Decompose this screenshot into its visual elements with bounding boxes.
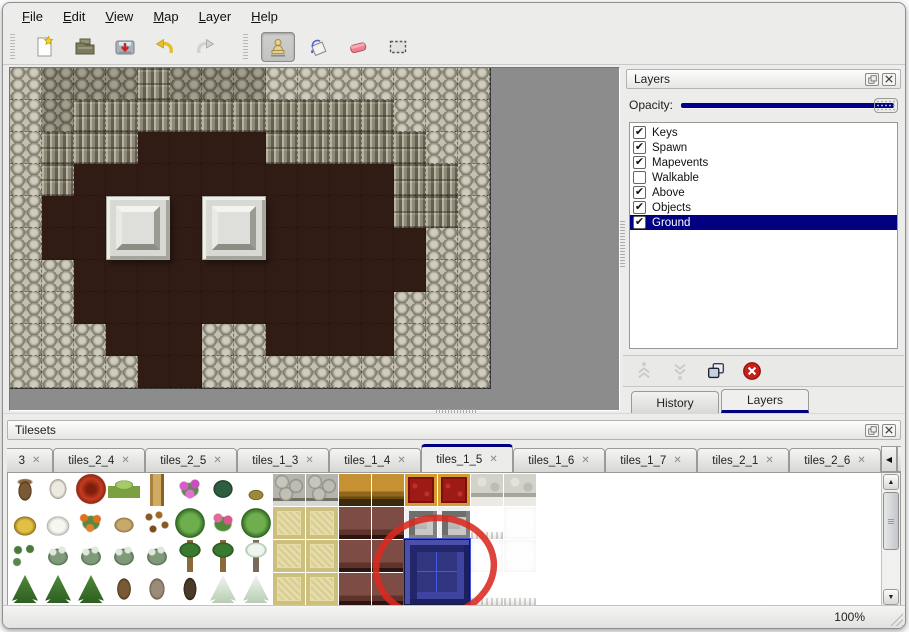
eraser-tool-icon (346, 35, 370, 59)
map-tile-light-rock-scales[interactable] (266, 68, 298, 100)
float-panel-button[interactable] (865, 424, 879, 437)
map-tile-cliff-face[interactable] (362, 100, 394, 132)
tileset-tile-pine[interactable] (9, 573, 41, 605)
tileset-tile-maroon[interactable] (372, 573, 404, 605)
map-tile-dark-rock-scales[interactable] (170, 68, 202, 100)
map-tile-cliff-face[interactable] (170, 100, 202, 132)
close-panel-button[interactable] (882, 73, 896, 86)
scroll-tabs-left-button[interactable]: ◀ (881, 446, 897, 472)
map-tile-brown-cobble-floor[interactable] (362, 196, 394, 228)
map-tile-brown-cobble-floor[interactable] (330, 292, 362, 324)
scroll-up-button[interactable]: ▲ (883, 474, 899, 490)
save-file-icon (113, 35, 137, 59)
map-tile-cliff-face[interactable] (202, 100, 234, 132)
map-tile-light-rock-scales[interactable] (426, 228, 458, 260)
undo-button[interactable] (148, 32, 182, 62)
tileset-tile-maroon[interactable] (372, 540, 404, 572)
tileset-tile-palm[interactable] (174, 540, 206, 572)
tileset-tile-wood[interactable] (372, 474, 404, 506)
blue-beveled-tile-selected[interactable] (404, 539, 470, 605)
tileset-tab-tiles_1_3[interactable]: tiles_1_3✕ (237, 448, 329, 472)
map-tile-brown-cobble-floor[interactable] (202, 260, 234, 292)
map-tile-light-rock-scales[interactable] (106, 356, 138, 388)
map-tile-cliff-face[interactable] (330, 132, 362, 164)
map-tile-brown-cobble-floor[interactable] (202, 292, 234, 324)
tileset-tile-dark-trunk[interactable] (174, 573, 206, 605)
fill-tool-button[interactable] (301, 32, 335, 62)
map-tile-brown-cobble-floor[interactable] (330, 260, 362, 292)
map-tile-brown-cobble-floor[interactable] (298, 324, 330, 356)
map-tile-brown-cobble-floor[interactable] (298, 260, 330, 292)
redo-button[interactable] (188, 32, 222, 62)
tileset-tile-lily-pad[interactable] (174, 507, 206, 539)
tileset-tile-lily-pad[interactable] (240, 507, 272, 539)
tileset-tile-trunk[interactable] (9, 474, 41, 506)
map-tile-dark-rock-scales[interactable] (42, 100, 74, 132)
menu-item-help[interactable]: Help (242, 6, 287, 27)
new-file-button[interactable] (28, 32, 62, 62)
map-tile-light-rock-scales[interactable] (394, 100, 426, 132)
opacity-slider-handle[interactable] (874, 98, 898, 113)
map-tile-light-rock-scales[interactable] (42, 260, 74, 292)
map-tile-dark-rock-scales[interactable] (234, 68, 266, 100)
tileset-tile-bush[interactable] (75, 540, 107, 572)
map-tile-brown-cobble-floor[interactable] (234, 260, 266, 292)
layer-visibility-checkbox[interactable] (633, 171, 646, 184)
tab-close-icon[interactable]: ✕ (32, 455, 40, 466)
tileset-tile-tatami[interactable] (273, 573, 305, 605)
map-tile-brown-cobble-floor[interactable] (138, 164, 170, 196)
tileset-tile-steel[interactable] (438, 507, 470, 539)
map-tile-light-rock-scales[interactable] (42, 324, 74, 356)
map-tile-brown-cobble-floor[interactable] (266, 260, 298, 292)
tileset-tile-tatami[interactable] (273, 540, 305, 572)
tab-layers[interactable]: Layers (721, 389, 809, 413)
map-tile-cliff-face[interactable] (298, 132, 330, 164)
map-tile-light-rock-scales[interactable] (458, 196, 490, 228)
map-tile-brown-cobble-floor[interactable] (74, 164, 106, 196)
tileset-tile-rose-bush[interactable] (207, 507, 239, 539)
menu-item-layer[interactable]: Layer (190, 6, 241, 27)
map-tile-brown-cobble-floor[interactable] (170, 292, 202, 324)
tab-close-icon[interactable]: ✕ (213, 455, 221, 466)
map-tile-brown-cobble-floor[interactable] (298, 196, 330, 228)
map-pillar-tile[interactable] (106, 196, 170, 260)
map-tile-light-rock-scales[interactable] (42, 356, 74, 388)
tileset-tile-maroon[interactable] (339, 573, 371, 605)
tileset-tile-pink-flowers[interactable] (174, 474, 206, 506)
map-tile-light-rock-scales[interactable] (458, 100, 490, 132)
map-tile-brown-cobble-floor[interactable] (202, 132, 234, 164)
tileset-tile-dead-tree-white[interactable] (42, 474, 74, 506)
tileset-tile-sprouts[interactable] (9, 540, 41, 572)
layer-visibility-checkbox[interactable]: ✔ (633, 141, 646, 154)
map-tile-brown-cobble-floor[interactable] (202, 164, 234, 196)
float-panel-button[interactable] (865, 73, 879, 86)
map-tile-brown-cobble-floor[interactable] (170, 356, 202, 388)
map-tile-cliff-face[interactable] (266, 132, 298, 164)
zoom-level: 100% (834, 610, 865, 624)
menu-bar: FileEditViewMapLayerHelp (3, 3, 905, 29)
tileset-tile-tatami[interactable] (306, 573, 338, 605)
map-tile-light-rock-scales[interactable] (458, 164, 490, 196)
duplicate-layer-button[interactable] (705, 360, 727, 382)
tileset-tile-white[interactable] (471, 540, 503, 572)
move-layer-up-button[interactable] (633, 360, 655, 382)
toolbar (3, 29, 905, 65)
map-pillar-tile[interactable] (202, 196, 266, 260)
map-tile-brown-cobble-floor[interactable] (394, 260, 426, 292)
layer-name: Objects (652, 202, 691, 214)
map-tile-brown-cobble-floor[interactable] (362, 324, 394, 356)
map-tile-cliff-face[interactable] (106, 100, 138, 132)
menu-item-file[interactable]: File (13, 6, 52, 27)
map-tile-cliff-face[interactable] (394, 196, 426, 228)
map-tile-cliff-face[interactable] (138, 68, 170, 100)
tileset-tab-label: tiles_2_1 (712, 455, 758, 467)
tileset-tile-red-carpet[interactable] (405, 474, 437, 506)
map-tile-light-rock-scales[interactable] (394, 324, 426, 356)
map-tile-light-rock-scales[interactable] (426, 324, 458, 356)
map-tile-brown-cobble-floor[interactable] (298, 292, 330, 324)
map-tile-dark-rock-scales[interactable] (202, 68, 234, 100)
close-panel-button[interactable] (882, 424, 896, 437)
tileset-tile-snow-pine[interactable] (207, 573, 239, 605)
open-file-button[interactable] (68, 32, 102, 62)
tileset-tile-dry-plant[interactable] (240, 474, 272, 506)
map-tile-brown-cobble-floor[interactable] (266, 164, 298, 196)
map-tile-light-rock-scales[interactable] (394, 292, 426, 324)
map-tile-light-rock-scales[interactable] (202, 356, 234, 388)
tileset-tab-tiles_1_4[interactable]: tiles_1_4✕ (329, 448, 421, 472)
map-tile-brown-cobble-floor[interactable] (170, 196, 202, 228)
tileset-tab-3[interactable]: 3✕ (7, 448, 53, 472)
map-tile-brown-cobble-floor[interactable] (298, 228, 330, 260)
map-tile-brown-cobble-floor[interactable] (362, 228, 394, 260)
map-tile-cliff-face[interactable] (362, 132, 394, 164)
tileset-tile-red-carpet[interactable] (438, 474, 470, 506)
open-file-icon (73, 35, 97, 59)
map-tile-light-rock-scales[interactable] (362, 68, 394, 100)
map-tile-light-rock-scales[interactable] (458, 324, 490, 356)
map-tile-brown-cobble-floor[interactable] (266, 292, 298, 324)
map-tile-brown-cobble-floor[interactable] (170, 324, 202, 356)
map-tile-cliff-face[interactable] (298, 100, 330, 132)
window-resize-grip[interactable] (886, 609, 903, 626)
map-tile-brown-cobble-floor[interactable] (106, 260, 138, 292)
map-tile-brown-cobble-floor[interactable] (266, 228, 298, 260)
scroll-down-button[interactable]: ▼ (883, 589, 899, 605)
tab-close-icon[interactable]: ✕ (673, 455, 681, 466)
tileset-tile-curtain-fringe[interactable] (471, 573, 503, 605)
tileset-tile-orange-flowers[interactable] (75, 507, 107, 539)
map-tile-light-rock-scales[interactable] (426, 260, 458, 292)
map-tile-brown-cobble-floor[interactable] (266, 196, 298, 228)
map-tile-brown-cobble-floor[interactable] (266, 324, 298, 356)
tileset-tile-stump[interactable] (108, 474, 140, 506)
tileset-tile-tatami[interactable] (306, 507, 338, 539)
map-tile-light-rock-scales[interactable] (10, 228, 42, 260)
tileset-tab-tiles_2_1[interactable]: tiles_2_1✕ (697, 448, 789, 472)
map-tile-brown-cobble-floor[interactable] (394, 228, 426, 260)
map-tile-light-rock-scales[interactable] (330, 356, 362, 388)
map-tile-light-rock-scales[interactable] (426, 292, 458, 324)
map-tile-brown-cobble-floor[interactable] (330, 196, 362, 228)
tab-history[interactable]: History (631, 391, 719, 413)
map-tile-light-rock-scales[interactable] (298, 68, 330, 100)
map-tile-cliff-face[interactable] (394, 164, 426, 196)
tileset-tab-tiles_2_4[interactable]: tiles_2_4✕ (53, 448, 145, 472)
map-tile-light-rock-scales[interactable] (74, 324, 106, 356)
map-tile-light-rock-scales[interactable] (42, 292, 74, 324)
map-tile-light-rock-scales[interactable] (458, 68, 490, 100)
map-tile-cliff-face[interactable] (106, 132, 138, 164)
tileset-tile-stone[interactable] (273, 474, 305, 506)
layer-name: Spawn (652, 142, 687, 154)
tileset-tile-hay-mound[interactable] (9, 507, 41, 539)
map-tile-cliff-face[interactable] (138, 100, 170, 132)
tileset-tile-bush[interactable] (108, 540, 140, 572)
layer-row-ground[interactable]: ✔Ground (630, 215, 897, 230)
tileset-tile-maroon[interactable] (372, 507, 404, 539)
scroll-tabs-right-button[interactable]: ▶ (897, 446, 901, 472)
layer-visibility-checkbox[interactable]: ✔ (633, 201, 646, 214)
map-tile-light-rock-scales[interactable] (458, 228, 490, 260)
map-tile-dark-rock-scales[interactable] (74, 68, 106, 100)
menu-item-view[interactable]: View (96, 6, 142, 27)
layer-name: Keys (652, 127, 678, 139)
map-tile-light-rock-scales[interactable] (426, 356, 458, 388)
undo-icon (153, 35, 177, 59)
map-tile-light-rock-scales[interactable] (458, 260, 490, 292)
tileset-tab-label: tiles_2_5 (160, 455, 206, 467)
scrollbar-thumb[interactable] (883, 492, 899, 550)
tileset-tab-tiles_2_6[interactable]: tiles_2_6✕ (789, 448, 881, 472)
map-tile-brown-cobble-floor[interactable] (106, 164, 138, 196)
map-tile-brown-cobble-floor[interactable] (74, 260, 106, 292)
map-tile-light-rock-scales[interactable] (234, 324, 266, 356)
tileset-tile-palm[interactable] (207, 540, 239, 572)
map-tile-cliff-face[interactable] (394, 132, 426, 164)
tileset-tile-dry-grass[interactable] (108, 507, 140, 539)
tab-close-icon[interactable]: ✕ (489, 454, 497, 465)
tileset-tab-tiles_1_6[interactable]: tiles_1_6✕ (513, 448, 605, 472)
opacity-slider-track[interactable] (681, 103, 894, 108)
tileset-tile-wood[interactable] (339, 474, 371, 506)
tileset-tiles[interactable] (8, 473, 538, 606)
map-tile-brown-cobble-floor[interactable] (138, 132, 170, 164)
tileset-tile-twisted-trunk[interactable] (108, 573, 140, 605)
map-tile-brown-cobble-floor[interactable] (170, 260, 202, 292)
layer-row-above[interactable]: ✔Above (630, 185, 897, 200)
map-tile-light-rock-scales[interactable] (394, 68, 426, 100)
tileset-tile-red-flower[interactable] (75, 474, 107, 506)
tab-close-icon[interactable]: ✕ (765, 455, 773, 466)
map-tile-light-rock-scales[interactable] (234, 356, 266, 388)
map-tile-light-rock-scales[interactable] (426, 68, 458, 100)
layer-name: Mapevents (652, 157, 708, 169)
tab-close-icon[interactable]: ✕ (581, 455, 589, 466)
map-tile-cliff-face[interactable] (42, 164, 74, 196)
map-tile-dark-rock-scales[interactable] (106, 68, 138, 100)
move-layer-down-button[interactable] (669, 360, 691, 382)
map-tile-light-rock-scales[interactable] (298, 356, 330, 388)
tileset-tile-curtain-fringe[interactable] (504, 573, 536, 605)
map-tile-light-rock-scales[interactable] (10, 100, 42, 132)
tileset-tile-maroon[interactable] (339, 540, 371, 572)
map-tile-cliff-face[interactable] (74, 100, 106, 132)
tileset-tile-dead-tree[interactable] (141, 573, 173, 605)
map-tile-cliff-face[interactable] (426, 196, 458, 228)
tileset-tile-steel[interactable] (405, 507, 437, 539)
map-tile-light-rock-scales[interactable] (458, 132, 490, 164)
tileset-tile-white[interactable] (504, 540, 536, 572)
map-tile-light-rock-scales[interactable] (10, 196, 42, 228)
map-tile-brown-cobble-floor[interactable] (42, 228, 74, 260)
map-tile-brown-cobble-floor[interactable] (234, 132, 266, 164)
tileset-tile-fern[interactable] (207, 474, 239, 506)
tileset-tile-pine[interactable] (42, 573, 74, 605)
tileset-tab-tiles_1_7[interactable]: tiles_1_7✕ (605, 448, 697, 472)
map-tile-light-rock-scales[interactable] (10, 356, 42, 388)
menu-item-map[interactable]: Map (144, 6, 187, 27)
rect-select-tool-button[interactable] (381, 32, 415, 62)
tileset-tile-leaves[interactable] (141, 507, 173, 539)
map-tile-light-rock-scales[interactable] (362, 356, 394, 388)
map-tile-light-rock-scales[interactable] (10, 292, 42, 324)
layer-row-objects[interactable]: ✔Objects (630, 200, 897, 215)
tab-close-icon[interactable]: ✕ (121, 455, 129, 466)
tileset-tile-tatami[interactable] (306, 540, 338, 572)
layer-visibility-checkbox[interactable]: ✔ (633, 126, 646, 139)
map-tile-light-rock-scales[interactable] (10, 164, 42, 196)
tileset-tab-label: tiles_1_6 (528, 455, 574, 467)
map-tile-light-rock-scales[interactable] (266, 356, 298, 388)
map-tile-cliff-face[interactable] (42, 132, 74, 164)
map-tile-light-rock-scales[interactable] (10, 68, 42, 100)
map-tile-brown-cobble-floor[interactable] (74, 228, 106, 260)
map-tile-brown-cobble-floor[interactable] (170, 164, 202, 196)
map-tile-brown-cobble-floor[interactable] (170, 228, 202, 260)
tileset-tile-snow-pine[interactable] (240, 573, 272, 605)
map-tile-brown-cobble-floor[interactable] (74, 292, 106, 324)
tileset-tab-label: tiles_1_7 (620, 455, 666, 467)
map-tile-cliff-face[interactable] (266, 100, 298, 132)
map-tile-brown-cobble-floor[interactable] (138, 292, 170, 324)
stamp-tool-icon (266, 35, 290, 59)
map-tile-brown-cobble-floor[interactable] (74, 196, 106, 228)
stamp-tool-button[interactable] (261, 32, 295, 62)
tab-close-icon[interactable]: ✕ (397, 455, 405, 466)
map-tile-brown-cobble-floor[interactable] (138, 324, 170, 356)
tileset-tile-snow-palm[interactable] (240, 540, 272, 572)
map-tile-dark-rock-scales[interactable] (42, 68, 74, 100)
tileset-tile-snow-mound[interactable] (42, 507, 74, 539)
map-tile-light-rock-scales[interactable] (330, 68, 362, 100)
map-tile-brown-cobble-floor[interactable] (138, 356, 170, 388)
layer-visibility-checkbox[interactable]: ✔ (633, 186, 646, 199)
map-tile-brown-cobble-floor[interactable] (234, 292, 266, 324)
tileset-tile-silver[interactable] (504, 474, 536, 506)
menu-item-edit[interactable]: Edit (54, 6, 94, 27)
tab-close-icon[interactable]: ✕ (857, 455, 865, 466)
map-tile-brown-cobble-floor[interactable] (330, 164, 362, 196)
map-tile-cliff-face[interactable] (330, 100, 362, 132)
tileset-tab-tiles_1_5[interactable]: tiles_1_5✕ (421, 444, 513, 472)
map-tile-brown-cobble-floor[interactable] (170, 132, 202, 164)
tab-scroll-buttons: ◀▶ (881, 446, 901, 472)
map-tile-brown-cobble-floor[interactable] (234, 164, 266, 196)
tileset-tile-tall-trunk[interactable] (141, 474, 173, 506)
layer-row-spawn[interactable]: ✔Spawn (630, 140, 897, 155)
redo-icon (193, 35, 217, 59)
opacity-slider[interactable] (681, 97, 898, 113)
tileset-tab-tiles_2_5[interactable]: tiles_2_5✕ (145, 448, 237, 472)
layer-buttons-row (623, 355, 904, 387)
map-tile-cliff-face[interactable] (234, 100, 266, 132)
map-tile-light-rock-scales[interactable] (458, 292, 490, 324)
toolbar-drag-handle[interactable] (9, 34, 16, 60)
map-tile-light-rock-scales[interactable] (394, 356, 426, 388)
delete-layer-button[interactable] (741, 360, 763, 382)
layer-row-walkable[interactable]: Walkable (630, 170, 897, 185)
map-tile-light-rock-scales[interactable] (426, 100, 458, 132)
tileset-tile-bush[interactable] (141, 540, 173, 572)
map-tile-light-rock-scales[interactable] (426, 132, 458, 164)
toolbar-drag-handle[interactable] (242, 34, 249, 60)
tileset-scrollbar[interactable]: ▲ ▼ (881, 473, 900, 606)
map-tile-light-rock-scales[interactable] (10, 132, 42, 164)
map-tile-light-rock-scales[interactable] (458, 356, 490, 388)
map-tile-brown-cobble-floor[interactable] (298, 164, 330, 196)
save-file-button[interactable] (108, 32, 142, 62)
eraser-tool-button[interactable] (341, 32, 375, 62)
map-tile-brown-cobble-floor[interactable] (330, 324, 362, 356)
layer-visibility-checkbox[interactable]: ✔ (633, 156, 646, 169)
map-tile-brown-cobble-floor[interactable] (330, 228, 362, 260)
tileset-tile-tatami[interactable] (273, 507, 305, 539)
map-tile-brown-cobble-floor[interactable] (362, 260, 394, 292)
tileset-tile-silver[interactable] (471, 474, 503, 506)
layer-row-keys[interactable]: ✔Keys (630, 125, 897, 140)
map-tile-cliff-face[interactable] (426, 164, 458, 196)
map-tile-light-rock-scales[interactable] (10, 260, 42, 292)
map-grid[interactable] (10, 68, 491, 389)
map-tile-light-rock-scales[interactable] (10, 324, 42, 356)
map-tile-light-rock-scales[interactable] (202, 324, 234, 356)
map-tile-brown-cobble-floor[interactable] (362, 164, 394, 196)
map-canvas[interactable] (9, 67, 620, 411)
tileset-tile-maroon[interactable] (339, 507, 371, 539)
tileset-tile-pine[interactable] (75, 573, 107, 605)
layer-visibility-checkbox[interactable]: ✔ (633, 216, 646, 229)
tileset-tab-label: 3 (19, 455, 25, 467)
map-tile-cliff-face[interactable] (74, 132, 106, 164)
layer-row-mapevents[interactable]: ✔Mapevents (630, 155, 897, 170)
tileset-tab-label: tiles_1_5 (436, 454, 482, 466)
tileset-tile-curtain-fringe[interactable] (471, 507, 503, 539)
tab-close-icon[interactable]: ✕ (305, 455, 313, 466)
map-tile-brown-cobble-floor[interactable] (106, 292, 138, 324)
map-tile-brown-cobble-floor[interactable] (42, 196, 74, 228)
map-tile-brown-cobble-floor[interactable] (138, 260, 170, 292)
tileset-tile-stone[interactable] (306, 474, 338, 506)
tileset-tile-white[interactable] (504, 507, 536, 539)
tileset-tile-bush[interactable] (42, 540, 74, 572)
map-tile-brown-cobble-floor[interactable] (106, 324, 138, 356)
map-tile-light-rock-scales[interactable] (74, 356, 106, 388)
map-tile-brown-cobble-floor[interactable] (362, 292, 394, 324)
